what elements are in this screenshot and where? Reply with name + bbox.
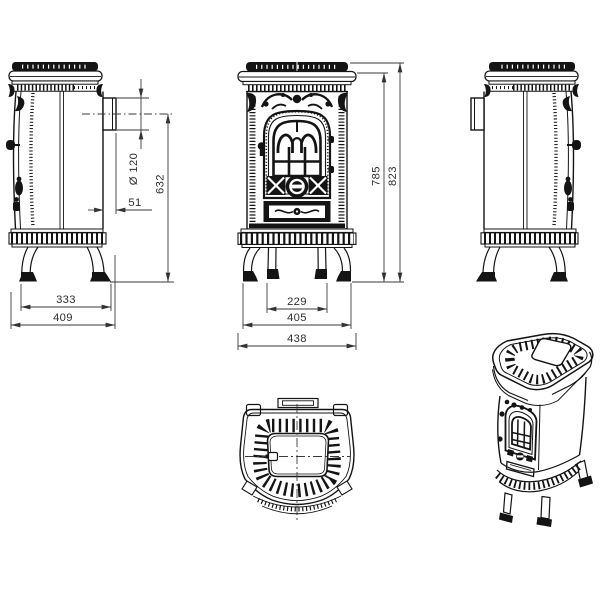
air-control-knob [286, 175, 309, 198]
door-handle [258, 142, 266, 150]
ash-drawer-plaque [264, 201, 331, 222]
overall-depth-dim-label: 409 [53, 312, 73, 324]
overall-width-dim-label: 438 [287, 333, 307, 345]
stove-technical-drawing: Ø 120 632 51 333 409 [0, 0, 600, 600]
door-hinge-bottom [329, 166, 335, 173]
side-view [6, 62, 116, 282]
outer-feet-span-dim-label: 405 [287, 312, 307, 324]
rosette-right [309, 176, 328, 195]
front-frieze [262, 93, 332, 109]
side-feet-span-dim-label: 333 [56, 294, 76, 306]
technical-drawing-canvas: Ø 120 632 51 333 409 [0, 0, 600, 600]
body-height-dim-label: 785 [371, 166, 383, 186]
front-view [238, 62, 356, 282]
flue-offset-dim-label: 51 [128, 197, 141, 209]
top-view-knob [266, 453, 278, 461]
flue-diameter-dim-label: Ø 120 [128, 153, 140, 185]
rosette-left [267, 176, 286, 195]
overall-height-dim-label: 823 [387, 166, 399, 186]
side-view-dimensions: Ø 120 632 51 333 409 [11, 79, 174, 329]
rear-side-view [471, 62, 581, 282]
inner-feet-span-dim-label: 229 [287, 296, 307, 308]
front-legs [243, 248, 351, 282]
flue-height-dim-label: 632 [155, 174, 167, 194]
perspective-view [493, 334, 594, 527]
top-view [240, 399, 354, 524]
door-hinge-top [329, 136, 335, 143]
